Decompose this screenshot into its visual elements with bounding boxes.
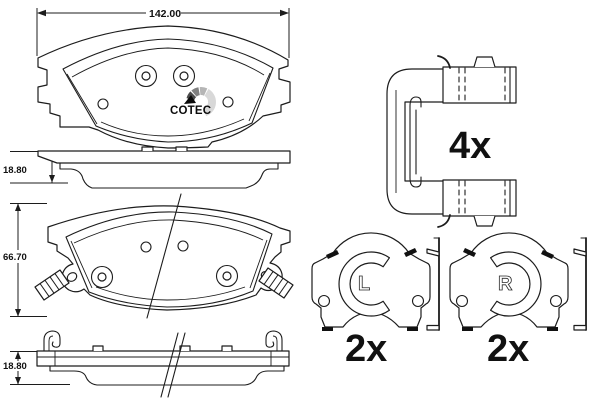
dim-thickness-bottom-label: 18.80 [3, 361, 27, 372]
indicator-qty-right-label: 2x [487, 328, 529, 370]
dim-height-label: 66.70 [3, 252, 27, 263]
brake-pad-front-view: COTEC [38, 26, 290, 148]
dim-pad-height: 66.70 [3, 204, 47, 317]
dim-thickness-top-label: 18.80 [3, 165, 27, 176]
clip-inner-strip [410, 97, 421, 187]
friction-profile [60, 163, 278, 188]
rear-backing-outline [48, 206, 290, 310]
cotec-logo-text: COTEC [170, 105, 211, 117]
pad-top-profile-view [38, 147, 290, 188]
indicator-letter-left: L [358, 273, 370, 295]
dim-width-label: 142.00 [149, 8, 181, 20]
retainer-spring-left [44, 331, 60, 352]
fitting-clip-view: 4x [387, 56, 516, 227]
drawing-canvas: 142.00 COTEC [0, 0, 600, 400]
pad-bottom-profile-view [37, 331, 289, 397]
backing-plate-profile [38, 151, 290, 163]
clip-qty-label: 4x [449, 125, 491, 167]
indicator-letter-right: R [498, 273, 513, 295]
brake-pad-technical-drawing: 142.00 COTEC [0, 0, 600, 400]
indicator-side-profile-right [574, 238, 586, 330]
indicator-qty-left-label: 2x [345, 328, 387, 370]
backing-plate-outline [38, 26, 290, 148]
wear-indicator-left-view [312, 233, 430, 331]
brake-pad-rear-view [35, 194, 293, 318]
retainer-spring-right [266, 331, 282, 352]
backing-plate-profile-bottom [37, 351, 289, 366]
